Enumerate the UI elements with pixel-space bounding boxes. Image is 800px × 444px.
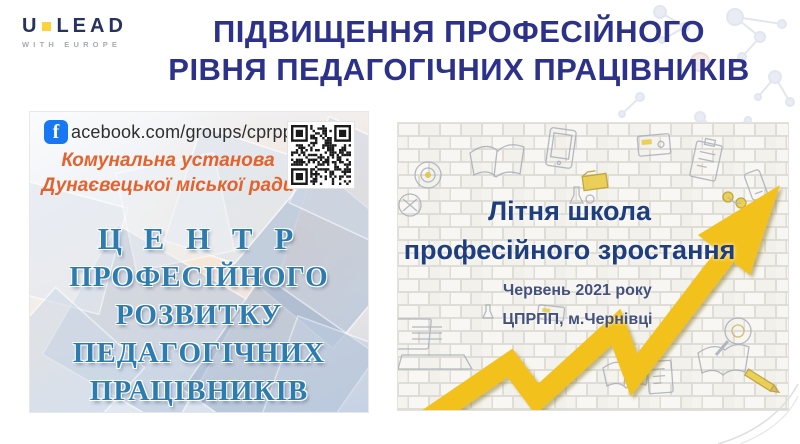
page-title: ПІДВИЩЕННЯ ПРОФЕСІЙНОГО РІВНЯ ПЕДАГОГІЧН… bbox=[130, 13, 788, 89]
summer-school-title-line-2: професійного зростання bbox=[398, 231, 741, 270]
center-title-line-4: ПЕДАГОГІЧНИХ bbox=[30, 334, 368, 372]
center-title-line-3: РОЗВИТКУ bbox=[30, 296, 368, 334]
facebook-link[interactable]: f acebook.com/groups/cprppdun bbox=[44, 120, 324, 144]
organization-line-2: Дунаєвецької міської ради bbox=[30, 173, 306, 198]
right-poster: Літня школа професійного зростання Черве… bbox=[398, 123, 788, 410]
u-lead-logo: U LEAD WITH EUROPE bbox=[22, 16, 127, 49]
logo-yellow-dash-icon bbox=[42, 22, 51, 31]
summer-school-title: Літня школа професійного зростання bbox=[398, 192, 741, 270]
organization-name: Комунальна установа Дунаєвецької міської… bbox=[30, 148, 306, 198]
qr-code bbox=[288, 122, 354, 188]
left-poster: f acebook.com/groups/cprppdun Комунальна… bbox=[30, 112, 368, 412]
summer-school-details: Червень 2021 року ЦПРПП, м.Чернівці bbox=[398, 276, 757, 334]
center-title: Ц Е Н Т Р ПРОФЕСІЙНОГО РОЗВИТКУ ПЕДАГОГІ… bbox=[30, 220, 368, 410]
u-lead-wordmark: U LEAD bbox=[22, 16, 127, 36]
facebook-icon-letter: f bbox=[53, 122, 60, 142]
center-title-line-5: ПРАЦІВНИКІВ bbox=[30, 372, 368, 410]
logo-tagline: WITH EUROPE bbox=[22, 40, 127, 49]
page-title-line-1: ПІДВИЩЕННЯ ПРОФЕСІЙНОГО bbox=[130, 13, 788, 51]
summer-school-place: ЦПРПП, м.Чернівці bbox=[398, 305, 757, 334]
organization-line-1: Комунальна установа bbox=[30, 148, 306, 173]
summer-school-date: Червень 2021 року bbox=[398, 276, 757, 305]
center-title-line-1: Ц Е Н Т Р bbox=[30, 220, 368, 258]
facebook-url-text: acebook.com/groups/cprppdun bbox=[71, 122, 324, 143]
center-title-line-2: ПРОФЕСІЙНОГО bbox=[30, 258, 368, 296]
logo-text-u: U bbox=[22, 16, 40, 36]
facebook-icon: f bbox=[44, 120, 68, 144]
slide: U LEAD WITH EUROPE ПІДВИЩЕННЯ ПРОФЕСІЙНО… bbox=[0, 0, 800, 444]
logo-text-lead: LEAD bbox=[56, 16, 126, 36]
page-title-line-2: РІВНЯ ПЕДАГОГІЧНИХ ПРАЦІВНИКІВ bbox=[130, 51, 788, 89]
summer-school-title-line-1: Літня школа bbox=[398, 192, 741, 231]
